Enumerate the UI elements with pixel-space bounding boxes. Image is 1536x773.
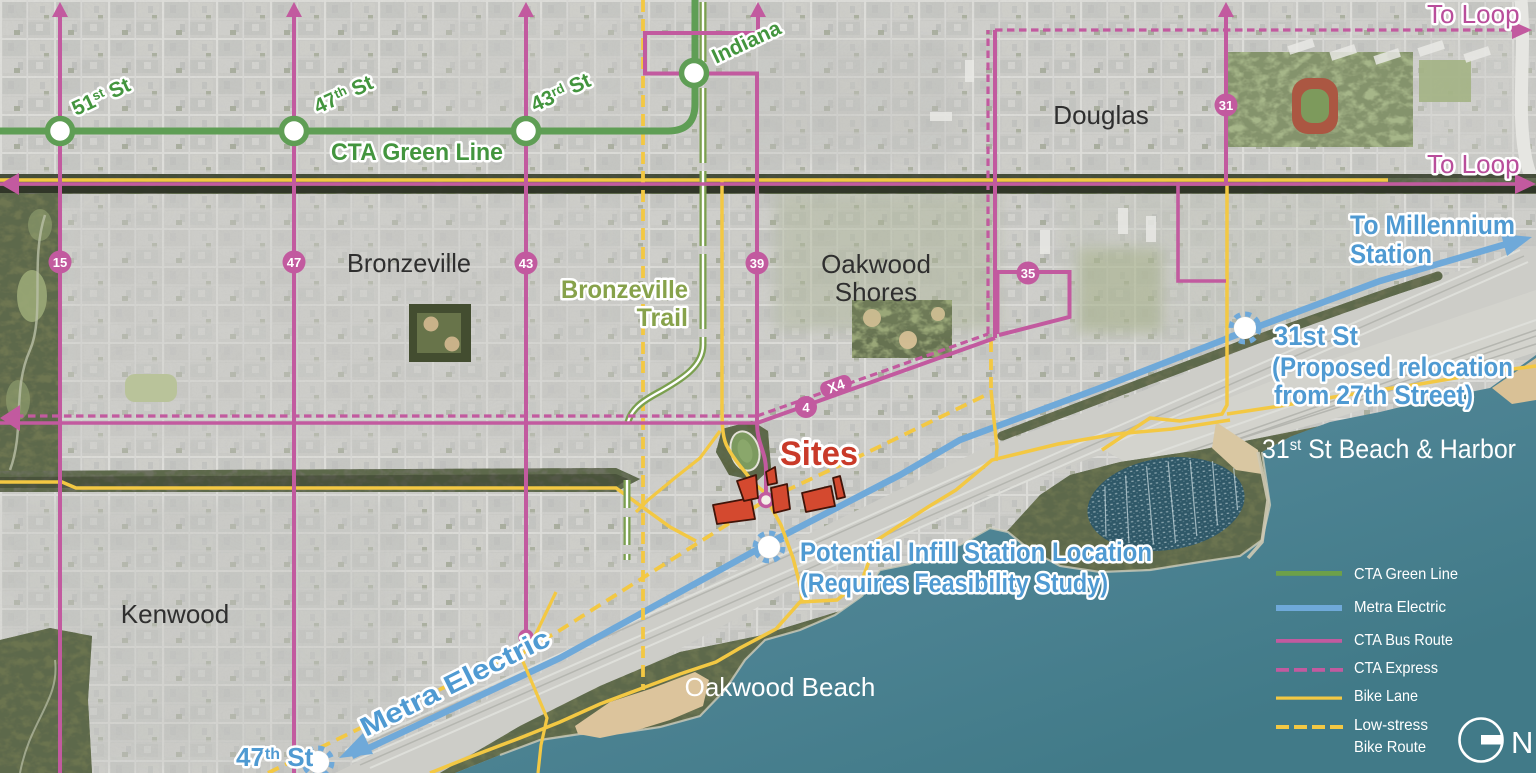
svg-text:31st St: 31st St [1274, 321, 1358, 351]
svg-text:CTA Green Line: CTA Green Line [331, 139, 503, 166]
svg-text:(Requires Feasibility Study): (Requires Feasibility Study) [800, 568, 1108, 598]
svg-text:31: 31 [1219, 98, 1233, 113]
svg-text:Oakwood Beach: Oakwood Beach [685, 672, 876, 702]
svg-text:To Millennium: To Millennium [1350, 210, 1515, 240]
svg-text:Douglas: Douglas [1053, 100, 1148, 130]
svg-text:CTA Green Line: CTA Green Line [1354, 566, 1458, 583]
svg-text:To Loop: To Loop [1427, 0, 1520, 29]
svg-text:Trail: Trail [637, 304, 688, 332]
svg-text:CTA Bus Route: CTA Bus Route [1354, 632, 1453, 649]
svg-text:Bronzeville: Bronzeville [561, 276, 688, 304]
svg-text:Potential Infill Station Locat: Potential Infill Station Location [800, 537, 1152, 567]
svg-text:43: 43 [519, 256, 533, 271]
svg-text:(Proposed relocation: (Proposed relocation [1272, 352, 1513, 382]
svg-text:Bike Route: Bike Route [1354, 739, 1426, 756]
svg-text:Low-stress: Low-stress [1354, 717, 1428, 734]
svg-text:35: 35 [1021, 266, 1035, 281]
svg-text:Shores: Shores [835, 277, 917, 307]
svg-text:Bronzeville: Bronzeville [347, 248, 471, 278]
svg-text:Bike Lane: Bike Lane [1354, 688, 1418, 705]
svg-text:4: 4 [802, 400, 810, 415]
svg-text:Station: Station [1350, 239, 1432, 269]
svg-text:Kenwood: Kenwood [121, 599, 229, 629]
svg-text:39: 39 [750, 256, 764, 271]
svg-text:47: 47 [287, 255, 301, 270]
svg-text:CTA Express: CTA Express [1354, 660, 1438, 677]
svg-text:N: N [1511, 725, 1533, 760]
svg-text:Sites: Sites [780, 435, 858, 473]
svg-text:15: 15 [53, 255, 67, 270]
svg-text:To Loop: To Loop [1427, 149, 1520, 179]
svg-text:Oakwood: Oakwood [821, 249, 931, 279]
svg-text:from 27th Street): from 27th Street) [1274, 380, 1473, 410]
svg-text:Metra Electric: Metra Electric [1354, 599, 1446, 616]
